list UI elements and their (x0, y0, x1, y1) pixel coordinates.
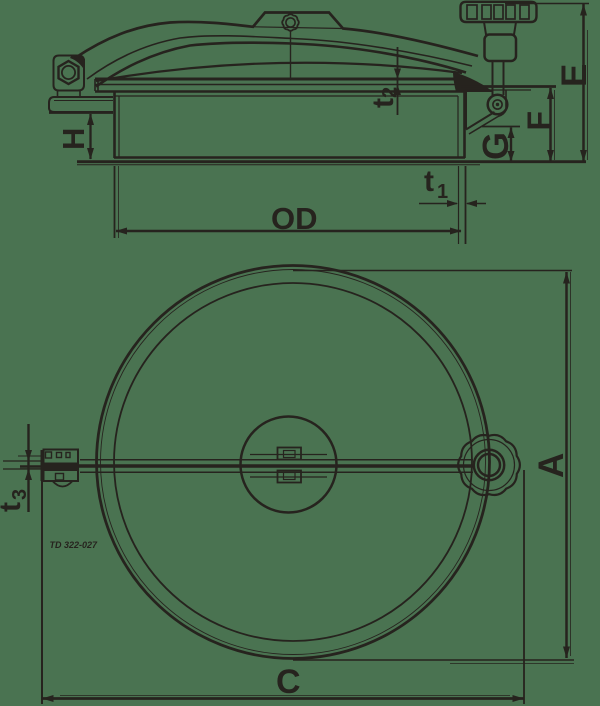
svg-text:E: E (555, 64, 594, 87)
svg-text:TD 322-027: TD 322-027 (50, 540, 99, 550)
svg-text:A: A (532, 453, 571, 478)
svg-text:t: t (0, 502, 27, 512)
svg-text:G: G (475, 132, 516, 160)
svg-text:H: H (56, 128, 91, 150)
svg-text:1: 1 (437, 181, 448, 203)
svg-text:3: 3 (9, 489, 31, 500)
svg-text:C: C (276, 663, 301, 701)
svg-text:2: 2 (379, 87, 401, 98)
svg-text:OD: OD (271, 201, 318, 236)
svg-text:t: t (367, 98, 400, 108)
svg-text:F: F (521, 111, 557, 131)
svg-text:t: t (424, 165, 434, 198)
